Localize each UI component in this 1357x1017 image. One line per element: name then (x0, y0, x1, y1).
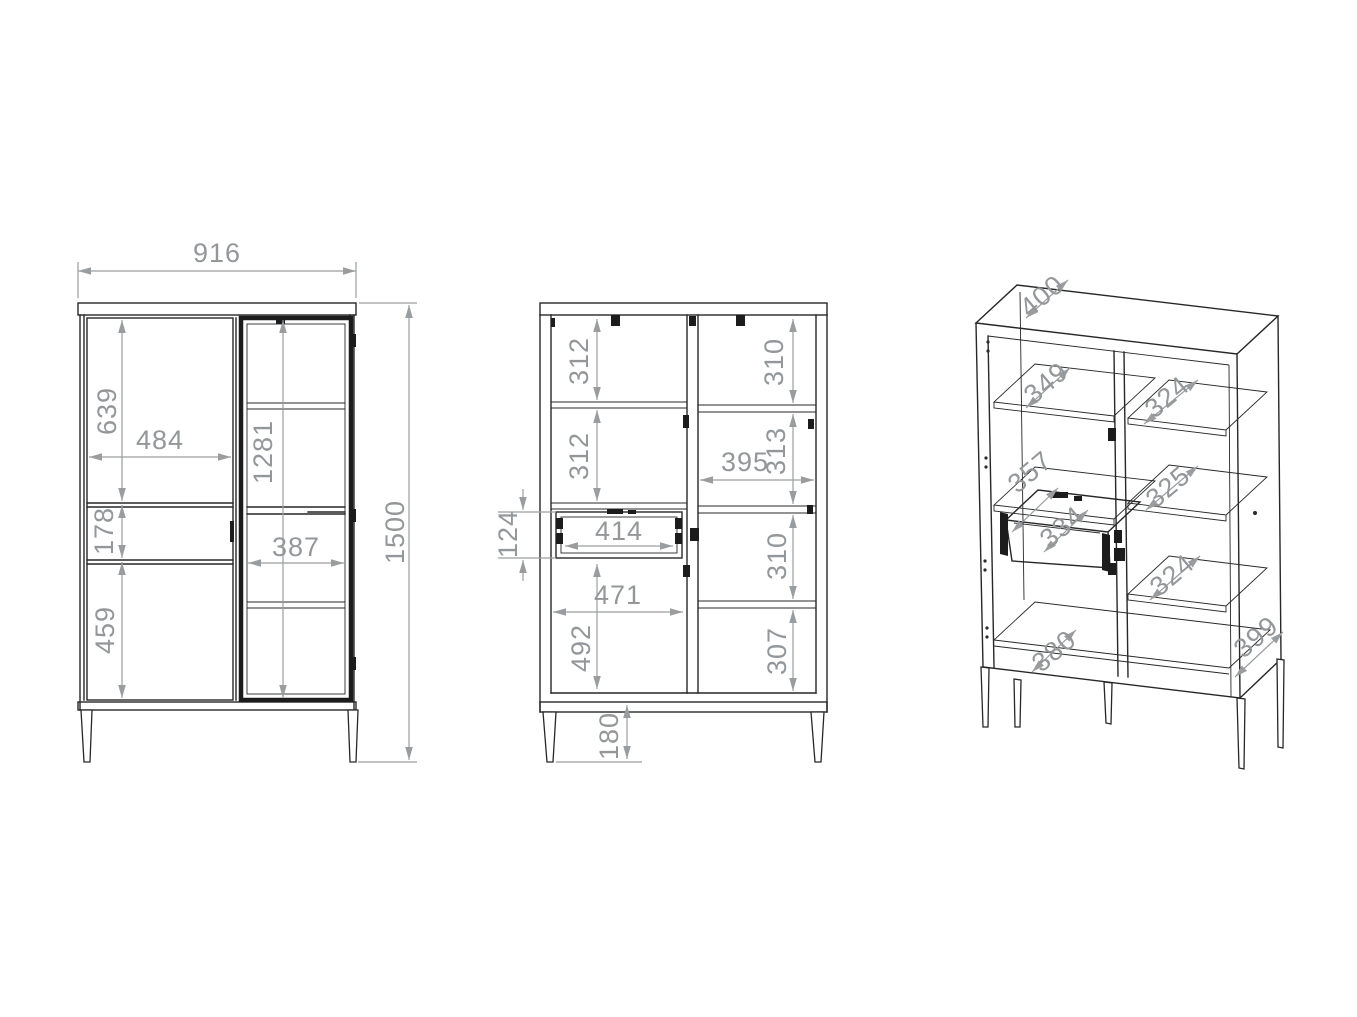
dim-side-depth: 399 (1228, 610, 1284, 664)
technical-drawing: 916 1500 639 484 178 459 1281 387 (0, 0, 1357, 1017)
dim-glass-door-height: 1281 (248, 420, 278, 484)
internal-view: 312 312 124 414 471 492 180 310 313 395 … (493, 303, 827, 762)
dim-lower-cavity-height: 492 (566, 624, 596, 672)
front-view: 916 1500 639 484 178 459 1281 387 (78, 238, 417, 762)
legs (81, 710, 358, 762)
drawing-page: 916 1500 639 484 178 459 1281 387 (0, 0, 1357, 1017)
isometric-view: 400 349 357 334 380 324 325 324 399 (976, 269, 1284, 769)
dim-right-cavity-width: 395 (721, 447, 769, 477)
dim-drawer-front-height: 178 (89, 507, 119, 555)
dim-drawer-height: 124 (493, 510, 523, 558)
dim-left-middle-section: 312 (564, 432, 594, 480)
dim-right-third-section: 310 (762, 532, 792, 580)
dim-right-top-section: 310 (759, 338, 789, 386)
dim-lower-cavity-width: 471 (594, 580, 642, 610)
internal-dimensions: 312 312 124 414 471 492 180 310 313 395 … (493, 319, 814, 762)
dim-left-shelf-top-depth: 349 (1018, 356, 1074, 410)
dim-lower-door-height: 459 (90, 606, 120, 654)
dim-overall-width: 916 (193, 238, 241, 268)
dim-door-width: 484 (136, 425, 184, 455)
dim-drawer-width: 414 (595, 516, 643, 546)
legs (543, 712, 824, 762)
dim-left-top-section: 312 (564, 337, 594, 385)
hinges (276, 318, 356, 670)
dim-leg-height: 180 (594, 712, 624, 760)
legs (981, 659, 1284, 769)
dim-glass-door-width: 387 (272, 532, 320, 562)
dim-top-depth: 400 (1014, 269, 1070, 323)
door-handle (230, 521, 234, 542)
iso-cabinet-outline (976, 285, 1284, 769)
dim-overall-height: 1500 (380, 500, 410, 564)
glass-door-frame (241, 318, 351, 700)
dim-right-shelf-top-depth: 324 (1139, 370, 1195, 424)
dim-right-bottom-section: 307 (762, 627, 792, 675)
dim-upper-door-height: 639 (92, 387, 122, 435)
dim-right-shelf-bottom-depth: 324 (1144, 548, 1200, 602)
dim-drawer-depth: 334 (1034, 500, 1090, 554)
